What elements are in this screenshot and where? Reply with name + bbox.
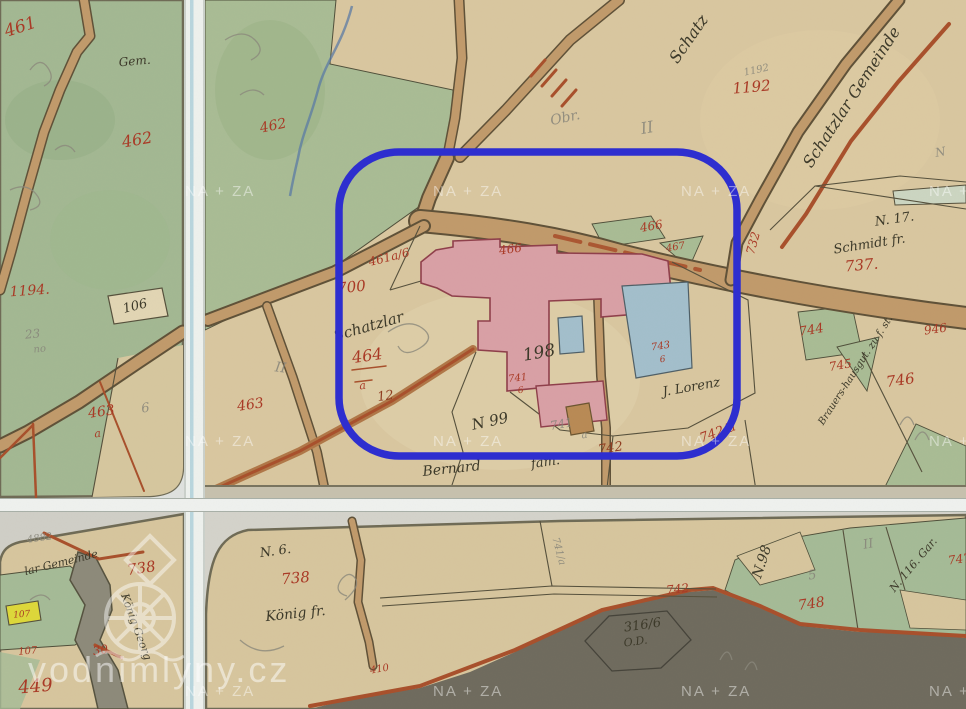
map-label: 737.: [844, 255, 879, 276]
map-label: no: [33, 343, 47, 355]
map-label: 738: [281, 568, 311, 588]
map-label: 23: [23, 326, 41, 342]
map-label: 107: [13, 609, 31, 620]
map-label: 12: [376, 388, 394, 405]
map-label: 742: [665, 581, 689, 597]
map-label: 741: [508, 372, 528, 385]
watermark-tile: NA + ZA: [681, 683, 751, 700]
watermark-tile: NA + ZA: [929, 683, 966, 700]
watermark-tile: NA + ZA: [433, 683, 503, 700]
watermark-tile: NA + ZA: [185, 433, 255, 450]
map-label: 1194.: [9, 282, 50, 301]
watermark-brand: vodnimlyny.cz: [28, 649, 290, 690]
watermark-tile: NA + ZA: [929, 183, 966, 200]
map-sheet-top-left: [0, 0, 183, 497]
watermark-tile: NA + ZA: [681, 433, 751, 450]
map-label: Gem.: [118, 53, 151, 70]
watermark-tile: NA + ZA: [433, 183, 503, 200]
watermark-tile: NA + ZA: [185, 183, 255, 200]
map-label: 1192: [732, 76, 772, 97]
watermark-tile: NA + ZA: [681, 183, 751, 200]
map-label: 747: [947, 550, 966, 567]
cadastral-map-scan: 461Gem.4621194.10623no463a6462Schatz1192…: [0, 0, 966, 709]
mill-building-blue: [558, 316, 584, 354]
watermark-tile: NA + ZA: [433, 433, 503, 450]
watermark-tile: NA + ZA: [929, 433, 966, 450]
